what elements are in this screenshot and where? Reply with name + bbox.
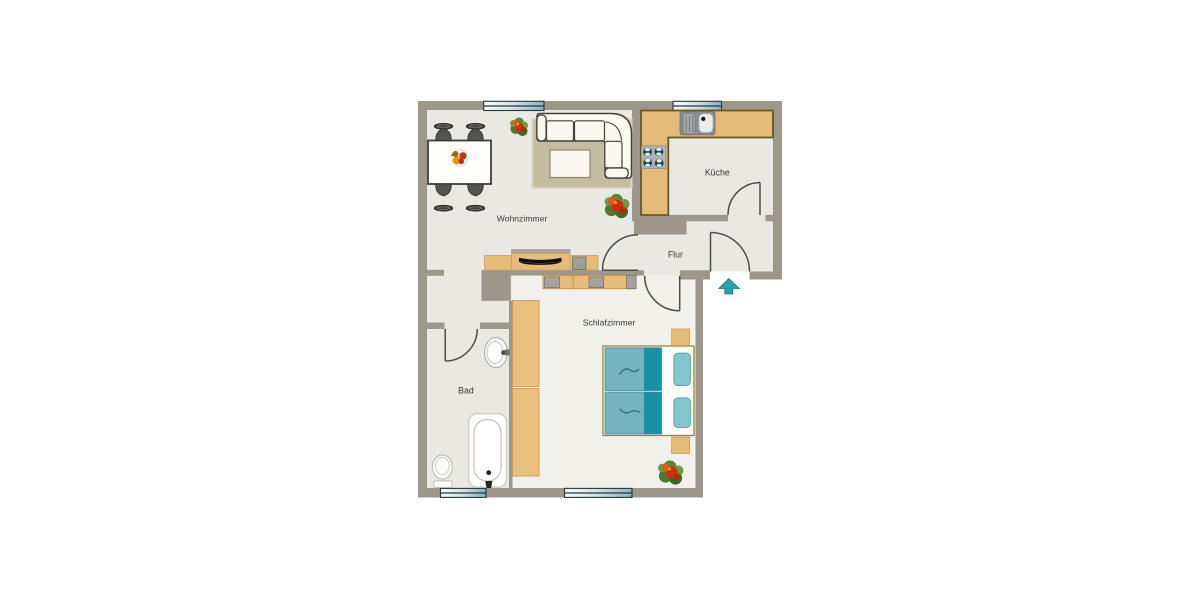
svg-text:Küche: Küche [705,168,730,178]
svg-text:Schlafzimmer: Schlafzimmer [583,318,636,328]
svg-text:Wohnzimmer: Wohnzimmer [497,214,548,224]
svg-text:Bad: Bad [458,386,474,396]
svg-text:Flur: Flur [668,250,683,260]
